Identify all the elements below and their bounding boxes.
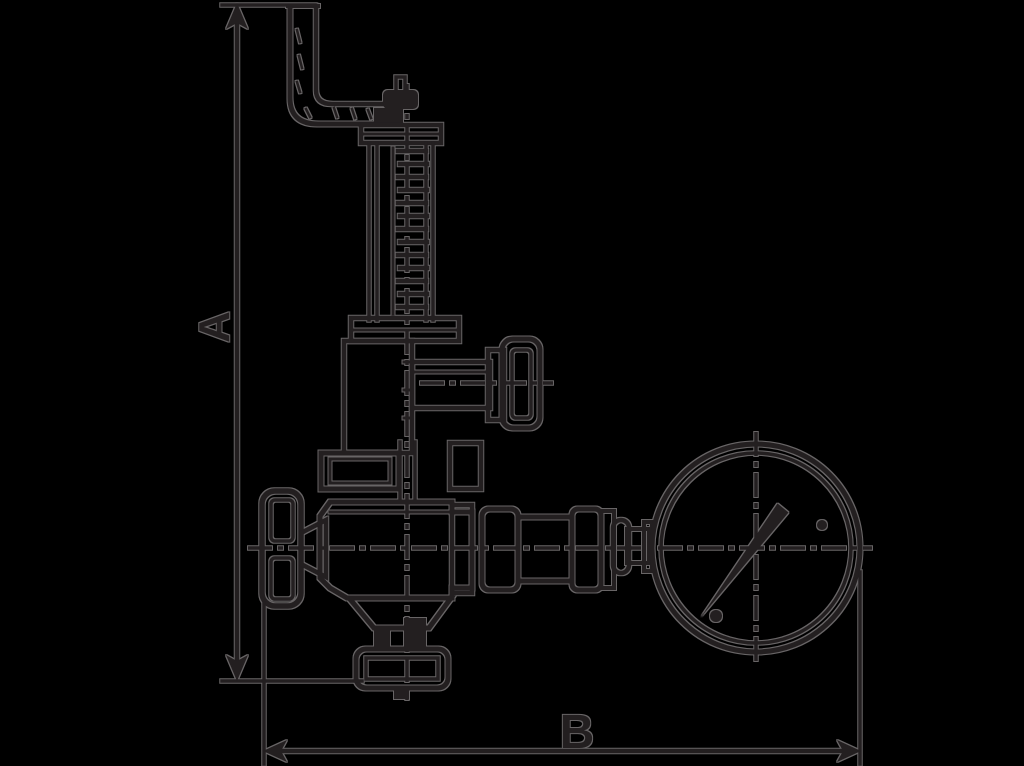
valve-body	[262, 491, 472, 699]
lever-inner-edge	[316, 6, 386, 104]
dim-a-label: A	[190, 311, 239, 343]
packing-collar-inner	[330, 459, 390, 483]
centerlines	[248, 84, 872, 700]
main-handwheel-slot-bottom	[271, 558, 293, 599]
gauge-needle	[701, 504, 789, 618]
bottom-tailpiece	[394, 688, 409, 699]
upper-body	[321, 339, 540, 593]
bottom-flange	[356, 649, 448, 688]
upper-column	[344, 341, 412, 453]
lever-outer-edge	[290, 6, 386, 124]
spring-bonnet	[351, 125, 459, 341]
body-outline	[320, 502, 472, 598]
outlet-tee-block	[450, 443, 481, 489]
body-neck	[349, 598, 451, 628]
spindle-cap	[383, 90, 418, 109]
gauge-pin-right	[817, 520, 827, 530]
side-branch	[412, 362, 490, 408]
spring-coils	[398, 151, 427, 307]
spindle-top	[374, 77, 418, 126]
test-lever	[288, 6, 386, 124]
neck-stub-right	[404, 618, 426, 650]
main-handwheel-slot-top	[271, 500, 293, 541]
bottom-flange-inner	[366, 658, 438, 679]
drawing-canvas: A B	[0, 0, 1024, 766]
valve-technical-drawing: A B	[0, 0, 1024, 766]
gauge-pin-lower	[710, 610, 722, 622]
dim-b-label: B	[560, 706, 595, 759]
